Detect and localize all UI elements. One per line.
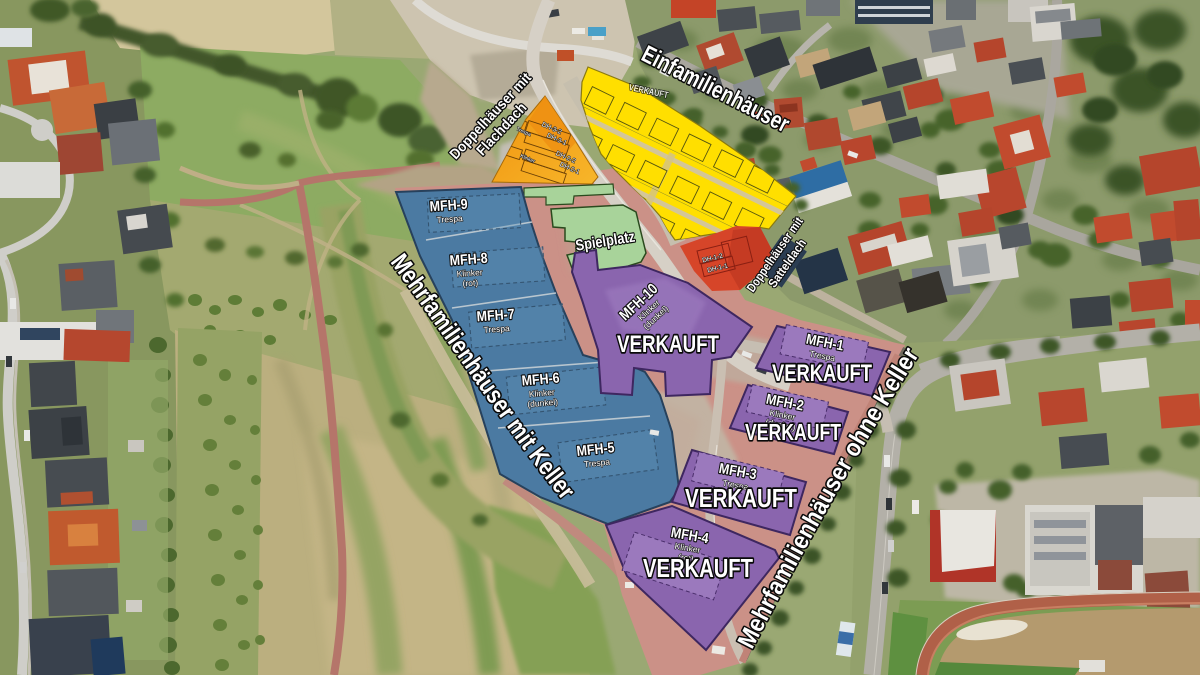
- svg-text:MFH-7: MFH-7: [476, 307, 515, 326]
- svg-text:Trespa: Trespa: [483, 323, 510, 335]
- svg-text:MFH-6: MFH-6: [521, 370, 560, 389]
- svg-text:VERKAUFT: VERKAUFT: [745, 419, 841, 445]
- svg-text:VERKAUFT: VERKAUFT: [617, 331, 719, 358]
- svg-text:MFH-9: MFH-9: [429, 197, 468, 216]
- svg-text:VERKAUFT: VERKAUFT: [772, 360, 872, 387]
- svg-text:(rot): (rot): [462, 277, 478, 288]
- svg-text:Trespa: Trespa: [436, 213, 463, 225]
- svg-text:VERKAUFT: VERKAUFT: [643, 553, 753, 583]
- svg-text:MFH-8: MFH-8: [449, 251, 488, 270]
- svg-text:VERKAUFT: VERKAUFT: [685, 483, 797, 513]
